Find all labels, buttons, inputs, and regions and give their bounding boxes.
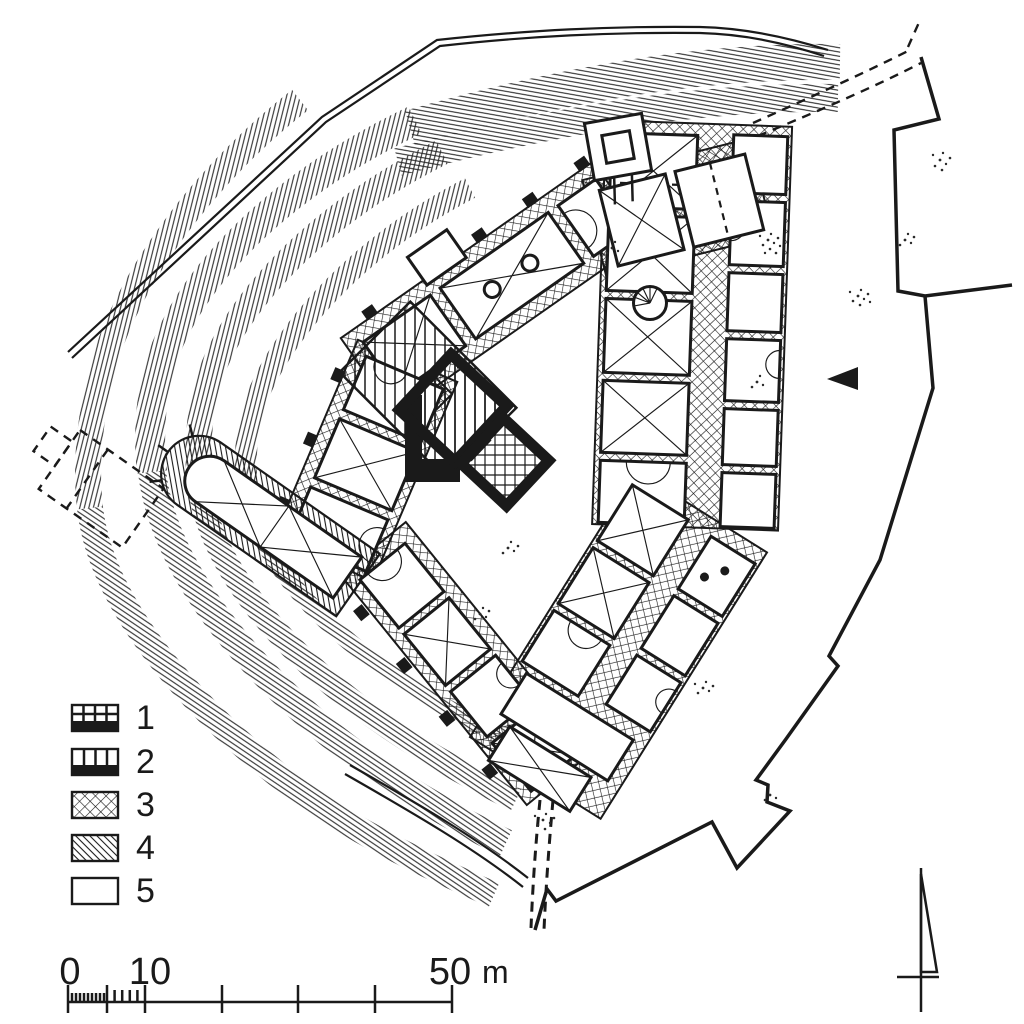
legend-swatch-diagonal-hatch-icon: [72, 835, 118, 861]
room: [727, 273, 783, 333]
legend-swatch-crosshatch-icon: [72, 792, 118, 818]
scale-label-10: 10: [129, 951, 171, 993]
room: [720, 473, 776, 529]
stair-tower: [634, 287, 667, 320]
legend-swatch-empty-icon: [72, 878, 118, 904]
legend-label: 2: [136, 743, 155, 781]
legend-row-5: 5: [72, 872, 155, 910]
room: [724, 339, 780, 403]
legend-row-4: 4: [72, 829, 155, 867]
room: [722, 409, 778, 467]
legend-label: 4: [136, 829, 155, 867]
legend-row-2: 2: [72, 743, 155, 781]
scale-label-50: 50: [429, 951, 471, 993]
legend: 1 2 3 4 5: [72, 699, 155, 910]
legend-row-3: 3: [72, 786, 155, 824]
scale-label-0: 0: [59, 951, 80, 993]
legend-swatch-grid-black-bar-icon: [72, 705, 118, 731]
legend-label: 5: [136, 872, 155, 910]
scale-unit: m: [482, 954, 509, 990]
legend-label: 1: [136, 699, 155, 737]
castle-plan-figure: 1 2 3 4 5 0 10 50 m: [0, 0, 1024, 1024]
legend-swatch-vertical-black-bar-icon: [72, 749, 118, 775]
legend-label: 3: [136, 786, 155, 824]
legend-row-1: 1: [72, 699, 155, 737]
plan-canvas: 1 2 3 4 5 0 10 50 m: [0, 0, 1024, 1024]
